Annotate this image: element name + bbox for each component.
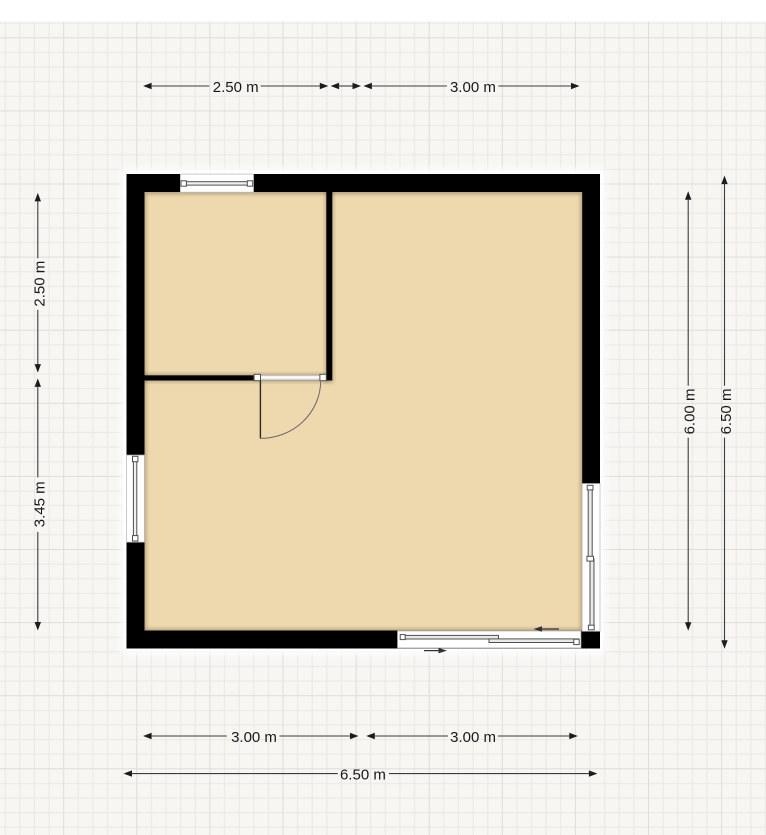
svg-text:3.00 m: 3.00 m: [450, 729, 496, 746]
svg-text:2.50 m: 2.50 m: [213, 79, 259, 96]
svg-text:6.50 m: 6.50 m: [718, 389, 735, 435]
svg-text:6.00 m: 6.00 m: [681, 389, 698, 435]
svg-text:3.45 m: 3.45 m: [31, 481, 48, 527]
svg-text:3.00 m: 3.00 m: [231, 729, 277, 746]
svg-text:2.50 m: 2.50 m: [31, 261, 48, 307]
svg-text:6.50 m: 6.50 m: [340, 766, 386, 783]
svg-text:3.00 m: 3.00 m: [450, 79, 496, 96]
